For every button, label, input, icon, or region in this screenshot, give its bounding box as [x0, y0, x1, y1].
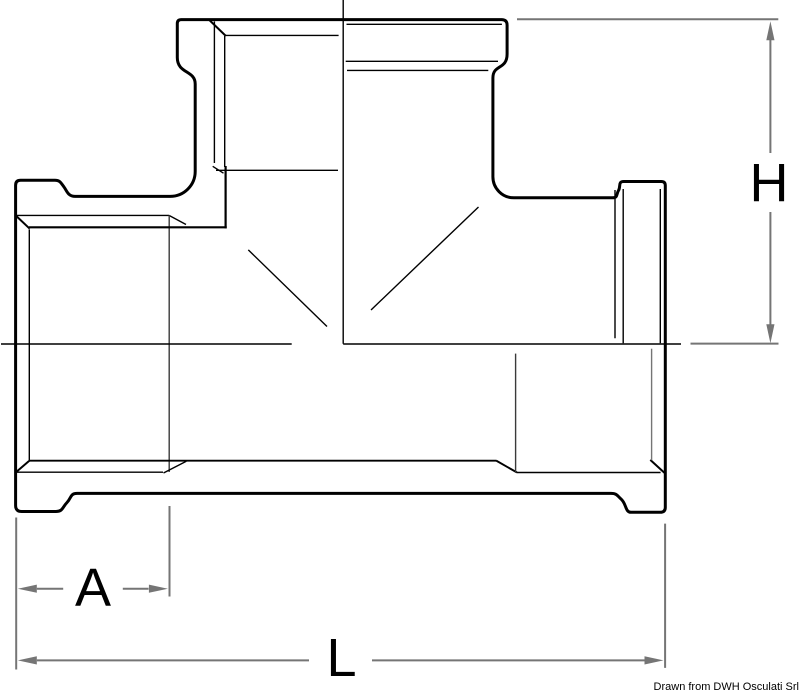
svg-text:A: A	[75, 558, 111, 618]
svg-text:H: H	[750, 153, 789, 213]
svg-text:L: L	[326, 628, 356, 688]
svg-text:Drawn from DWH Osculati Srl: Drawn from DWH Osculati Srl	[654, 681, 799, 693]
